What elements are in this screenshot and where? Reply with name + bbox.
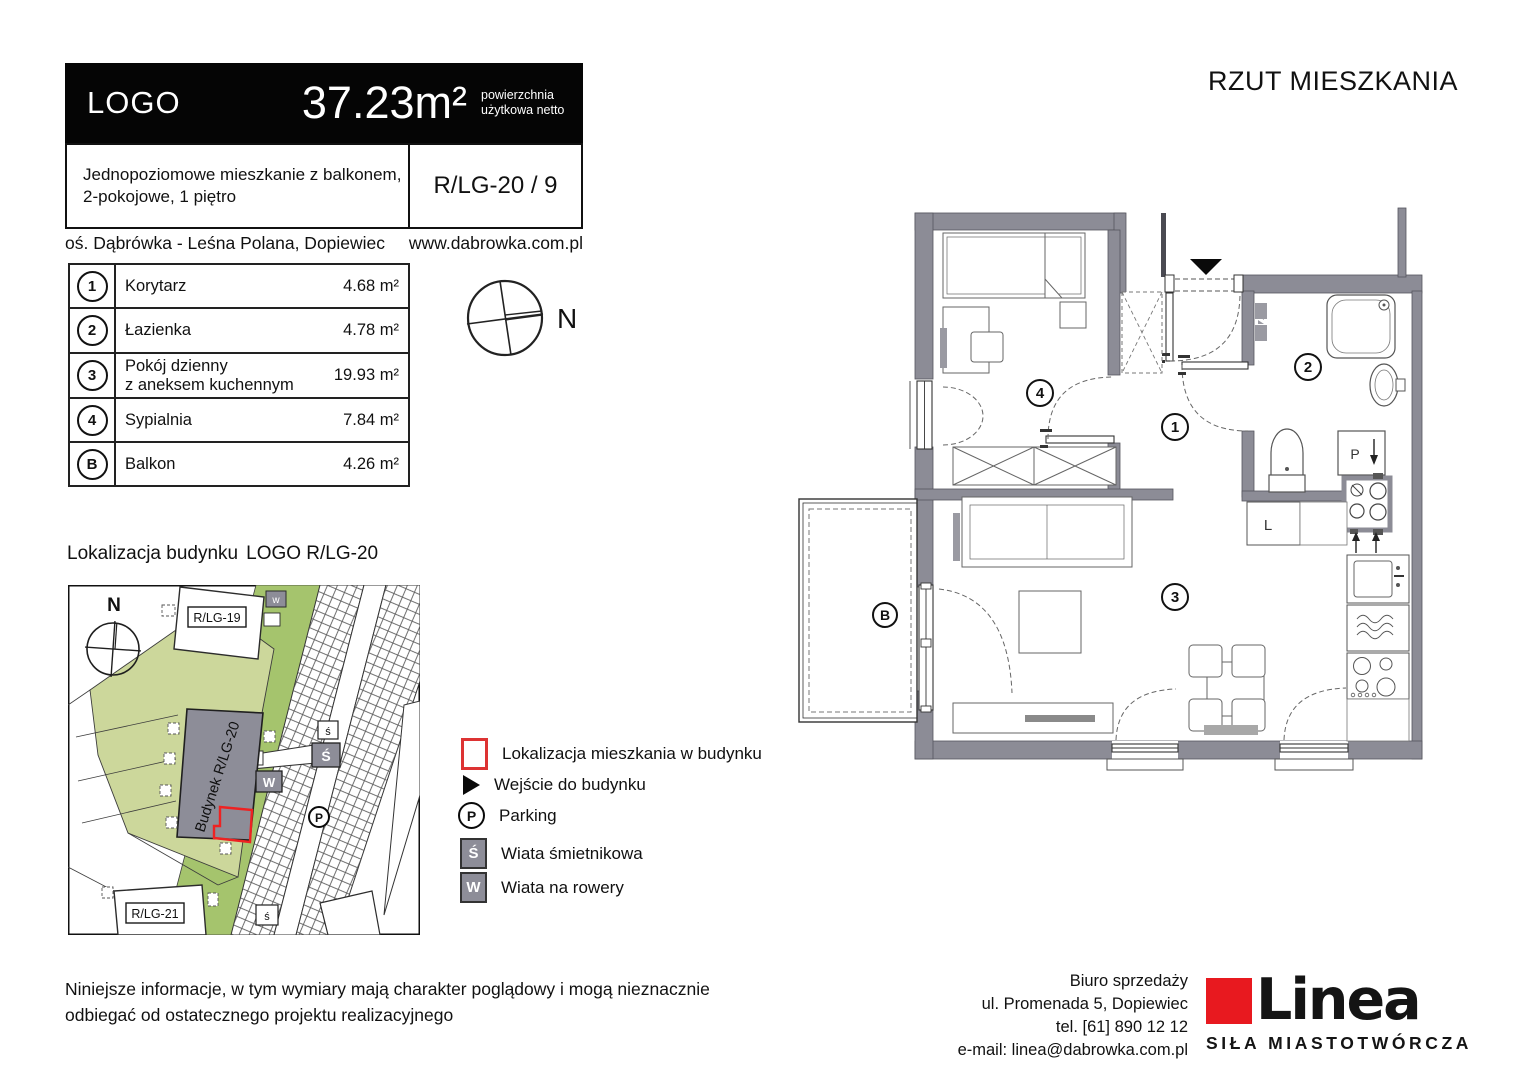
svg-text:ś: ś bbox=[264, 911, 270, 923]
legend-apartment: Lokalizacja mieszkania w budynku bbox=[461, 738, 762, 770]
office-name: Biuro sprzedaży bbox=[958, 970, 1188, 993]
unit-code: R/LG-20 / 9 bbox=[410, 145, 581, 227]
room-number: B bbox=[77, 449, 108, 480]
tv bbox=[1025, 715, 1095, 722]
room-area: 19.93 m² bbox=[314, 354, 408, 397]
desk-chair bbox=[971, 332, 1003, 362]
apartment-info-box: Jednopoziomowe mieszkanie z balkonem, 2-… bbox=[65, 143, 583, 229]
svg-text:P: P bbox=[315, 811, 323, 825]
table-row: 4 Sypialnia 7.84 m² bbox=[70, 397, 408, 441]
site-map: R/LG-19 w R/LG-21 Budynek R/LG-20 bbox=[68, 585, 420, 935]
svg-text:R/LG-19: R/LG-19 bbox=[193, 611, 240, 625]
room-area: 7.84 m² bbox=[314, 399, 408, 441]
bathroom-fixtures bbox=[1255, 295, 1405, 492]
bin-shed-icon: Ś bbox=[460, 838, 487, 869]
office-email[interactable]: e-mail: linea@dabrowka.com.pl bbox=[958, 1039, 1188, 1062]
brand-name: Linea bbox=[1256, 977, 1420, 1024]
nightstand bbox=[1060, 302, 1086, 328]
apartment-outline-icon bbox=[461, 738, 488, 770]
balcony bbox=[799, 499, 917, 722]
room-number: 2 bbox=[77, 315, 108, 346]
office-phone: tel. [61] 890 12 12 bbox=[958, 1016, 1188, 1039]
entrance-arrow-icon bbox=[463, 775, 480, 795]
room-name: Balkon bbox=[125, 455, 314, 474]
room-name: Łazienka bbox=[125, 321, 314, 340]
chair bbox=[1189, 645, 1222, 677]
svg-text:W: W bbox=[263, 775, 276, 790]
room-number: 1 bbox=[77, 271, 108, 302]
table-row: 1 Korytarz 4.68 m² bbox=[70, 265, 408, 307]
bathroom-door bbox=[1178, 355, 1248, 431]
utility-box bbox=[1344, 473, 1390, 553]
header-block: LOGO 37.23m² powierzchnia użytkowa netto bbox=[65, 63, 583, 143]
svg-text:R/LG-21: R/LG-21 bbox=[131, 907, 178, 921]
living-window-1 bbox=[1107, 689, 1183, 770]
page-title: RZUT MIESZKANIA bbox=[1208, 66, 1458, 97]
disclaimer-line1: Niniejsze informacje, w tym wymiary mają… bbox=[65, 976, 710, 1002]
legend-label: Wiata na rowery bbox=[501, 878, 624, 898]
sales-office-contact: Biuro sprzedaży ul. Promenada 5, Dopiewi… bbox=[958, 970, 1188, 1062]
living-window-2 bbox=[1275, 688, 1353, 770]
floor-plan: 1 2 3 4 B L P bbox=[790, 195, 1490, 940]
table-row: 3 Pokój dzienny z aneksem kuchennym 19.9… bbox=[70, 352, 408, 397]
building-rlg20: Budynek R/LG-20 bbox=[177, 709, 263, 842]
corridor-closet bbox=[1122, 292, 1162, 373]
location-heading: Lokalizacja budynkuLOGO R/LG-20 bbox=[67, 543, 378, 565]
page: RZUT MIESZKANIA LOGO 37.23m² powierzchni… bbox=[0, 0, 1528, 1080]
legend-entrance: Wejście do budynku bbox=[463, 775, 646, 795]
description-line2: 2-pokojowe, 1 piętro bbox=[83, 186, 408, 208]
label-balcony: B bbox=[880, 607, 890, 623]
kitchen-counter bbox=[1347, 699, 1409, 741]
legend-label: Wiata śmietnikowa bbox=[501, 844, 643, 864]
fridge bbox=[1247, 502, 1300, 545]
website-link[interactable]: www.dabrowka.com.pl bbox=[409, 233, 583, 254]
north-label: N bbox=[557, 303, 577, 334]
estate-name: oś. Dąbrówka - Leśna Polana, Dopiewiec bbox=[65, 233, 385, 254]
entrance-door-leaf bbox=[1166, 293, 1173, 361]
label-living: 3 bbox=[1171, 589, 1179, 606]
room-name-line2: z aneksem kuchennym bbox=[125, 376, 314, 395]
legend-bike-shed: W Wiata na rowery bbox=[460, 872, 624, 903]
label-corridor: 1 bbox=[1171, 419, 1179, 436]
legend-label: Wejście do budynku bbox=[494, 775, 646, 795]
location-heading-code: LOGO R/LG-20 bbox=[246, 543, 378, 564]
building-rlg21: R/LG-21 bbox=[102, 885, 218, 935]
brand-logo: Linea SIŁA MIASTOTWÓRCZA bbox=[1206, 977, 1476, 1054]
brand-red-square-icon bbox=[1206, 978, 1252, 1024]
entrance bbox=[1156, 259, 1243, 363]
label-bedroom: 4 bbox=[1036, 385, 1045, 402]
entrance-arrow-icon bbox=[1190, 259, 1222, 275]
room-area: 4.78 m² bbox=[314, 309, 408, 352]
area-note: powierzchnia użytkowa netto bbox=[481, 88, 573, 118]
room-name: Korytarz bbox=[125, 277, 314, 296]
radiator bbox=[953, 513, 960, 561]
party-wall-stub bbox=[1161, 213, 1166, 277]
room-number: 4 bbox=[77, 405, 108, 436]
washing-machine bbox=[1338, 431, 1385, 475]
svg-text:Ś: Ś bbox=[321, 747, 330, 764]
living-furniture bbox=[953, 497, 1265, 735]
dishwasher bbox=[1347, 605, 1409, 651]
bike-shed-icon: W bbox=[460, 872, 487, 903]
room-area: 4.26 m² bbox=[314, 443, 408, 485]
room-name: Pokój dzienny bbox=[125, 357, 314, 376]
estate-row: oś. Dąbrówka - Leśna Polana, Dopiewiec w… bbox=[65, 233, 583, 254]
office-address: ul. Promenada 5, Dopiewiec bbox=[958, 993, 1188, 1016]
room-table: 1 Korytarz 4.68 m² 2 Łazienka 4.78 m² 3 … bbox=[68, 263, 410, 487]
apartment-area: 37.23m² bbox=[302, 77, 467, 129]
bedroom-window bbox=[910, 381, 983, 449]
brand-tagline: SIŁA MIASTOTWÓRCZA bbox=[1206, 1033, 1476, 1054]
legend-label: Lokalizacja mieszkania w budynku bbox=[502, 744, 762, 764]
coffee-table bbox=[1019, 591, 1081, 653]
legend-parking: P Parking bbox=[458, 802, 557, 829]
svg-text:ś: ś bbox=[325, 726, 331, 738]
label-washer: P bbox=[1350, 446, 1359, 462]
chair bbox=[1232, 645, 1265, 677]
description-line1: Jednopoziomowe mieszkanie z balkonem, bbox=[83, 164, 408, 186]
disclaimer-line2: odbiegać od ostatecznego projektu realiz… bbox=[65, 1002, 710, 1028]
developer-logo: LOGO bbox=[87, 85, 181, 121]
legend-bin-shed: Ś Wiata śmietnikowa bbox=[460, 838, 643, 869]
table-row: B Balkon 4.26 m² bbox=[70, 441, 408, 485]
room-name: Sypialnia bbox=[125, 411, 314, 430]
label-fridge: L bbox=[1264, 517, 1272, 534]
table-row: 2 Łazienka 4.78 m² bbox=[70, 307, 408, 352]
room-area: 4.68 m² bbox=[314, 265, 408, 307]
bedroom-furniture bbox=[940, 233, 1116, 485]
parking-icon: P bbox=[458, 802, 485, 829]
disclaimer: Niniejsze informacje, w tym wymiary mają… bbox=[65, 976, 710, 1029]
label-bathroom: 2 bbox=[1304, 359, 1312, 376]
balcony-door bbox=[919, 583, 1012, 712]
map-north-label: N bbox=[107, 595, 121, 616]
radiator bbox=[940, 328, 947, 368]
kitchen bbox=[1247, 502, 1409, 741]
location-heading-text: Lokalizacja budynku bbox=[67, 543, 238, 564]
legend-label: Parking bbox=[499, 806, 557, 826]
room-number: 3 bbox=[77, 360, 108, 391]
svg-text:w: w bbox=[271, 595, 280, 606]
compass-icon: N bbox=[462, 272, 592, 367]
apartment-description: Jednopoziomowe mieszkanie z balkonem, 2-… bbox=[67, 145, 410, 227]
